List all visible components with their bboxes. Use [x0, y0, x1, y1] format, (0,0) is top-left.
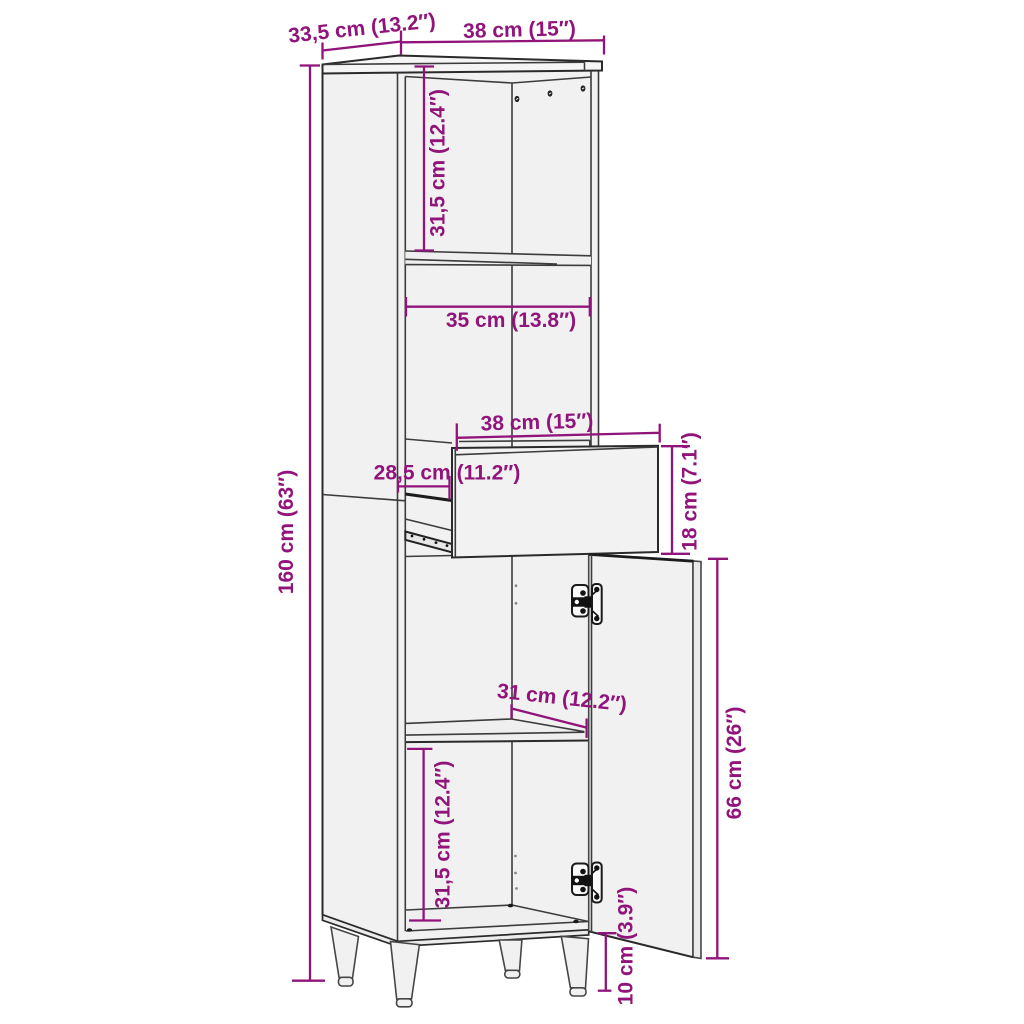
svg-text:28,5 cm (11.2″): 28,5 cm (11.2″): [374, 462, 521, 485]
svg-text:31,5 cm (12.4″): 31,5 cm (12.4″): [432, 761, 455, 909]
svg-text:160 cm (63″): 160 cm (63″): [275, 470, 298, 594]
svg-text:35 cm (13.8″): 35 cm (13.8″): [446, 309, 576, 332]
svg-text:10 cm (3.9″): 10 cm (3.9″): [615, 887, 638, 1006]
svg-text:31,5 cm (12.4″): 31,5 cm (12.4″): [427, 89, 450, 237]
svg-text:38 cm (15″): 38 cm (15″): [480, 410, 593, 436]
svg-text:66 cm (26″): 66 cm (26″): [723, 707, 746, 820]
svg-text:38 cm (15″): 38 cm (15″): [463, 17, 576, 43]
svg-text:18 cm (7.1″): 18 cm (7.1″): [679, 432, 702, 551]
